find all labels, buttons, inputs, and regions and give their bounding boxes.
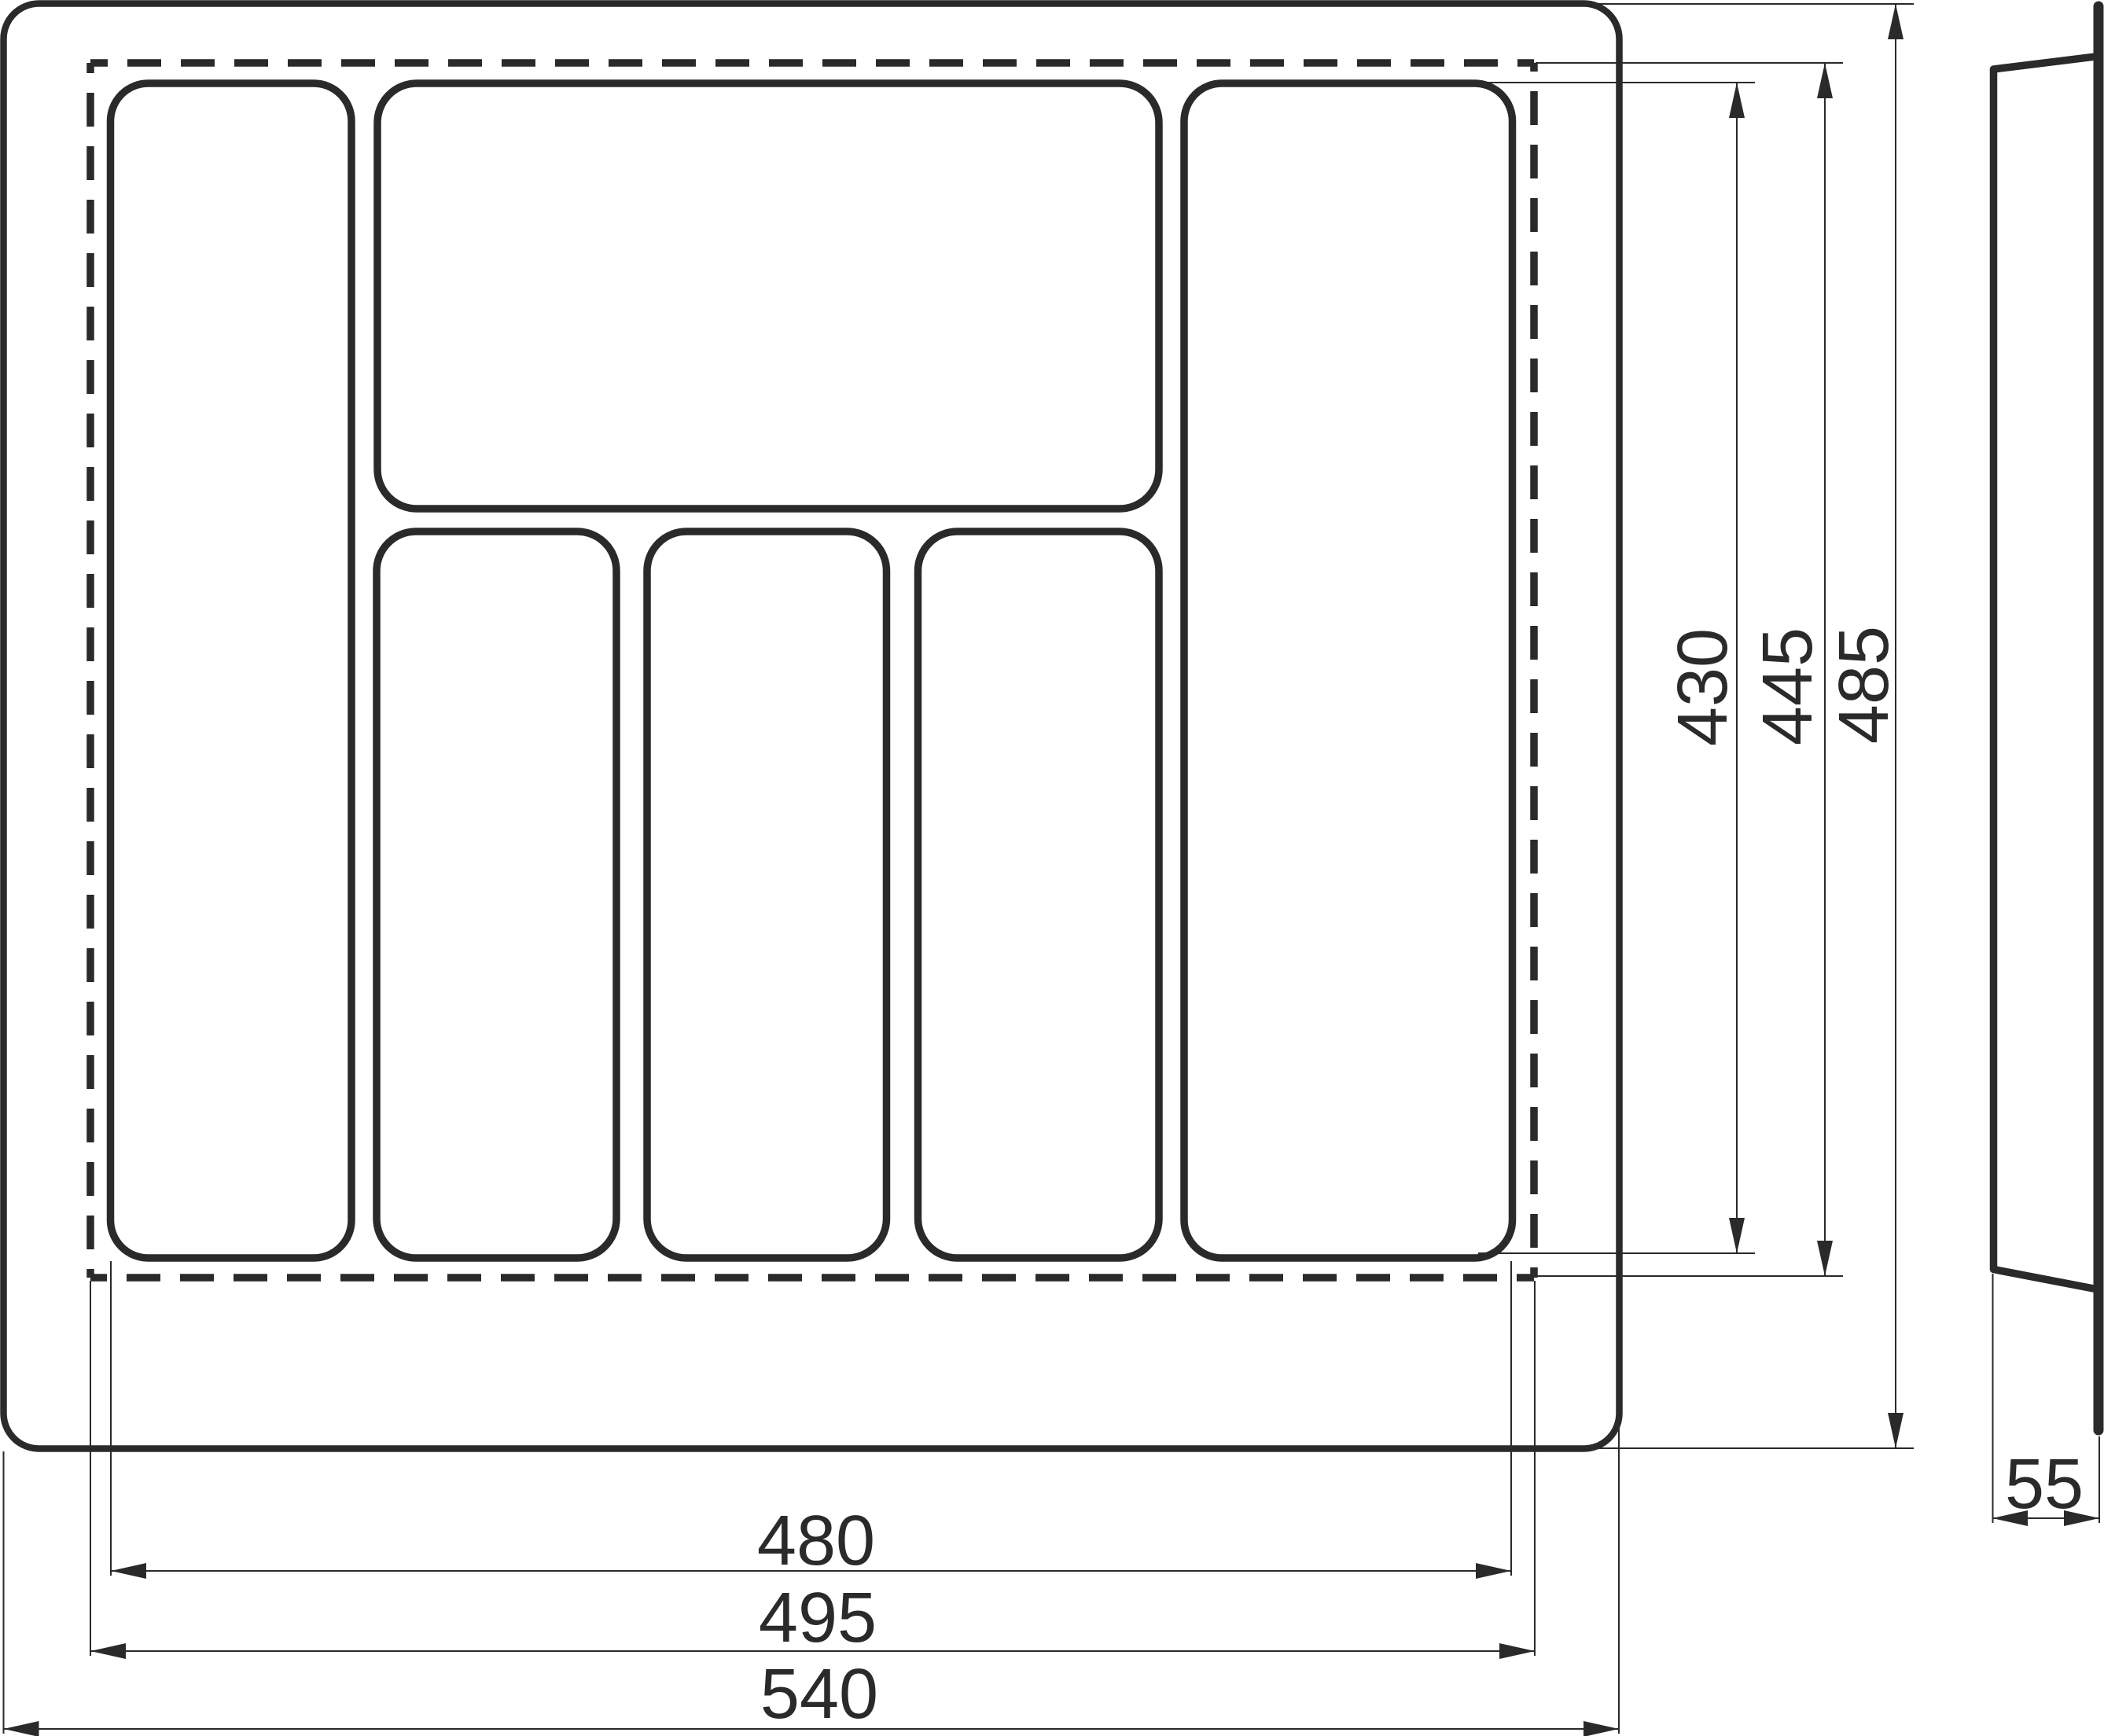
svg-text:55: 55 bbox=[2005, 1445, 2084, 1524]
svg-text:445: 445 bbox=[1749, 627, 1827, 745]
svg-text:540: 540 bbox=[760, 1655, 878, 1734]
svg-text:480: 480 bbox=[757, 1502, 875, 1580]
svg-text:485: 485 bbox=[1825, 626, 1904, 744]
svg-text:495: 495 bbox=[759, 1579, 877, 1657]
svg-text:430: 430 bbox=[1664, 628, 1742, 746]
